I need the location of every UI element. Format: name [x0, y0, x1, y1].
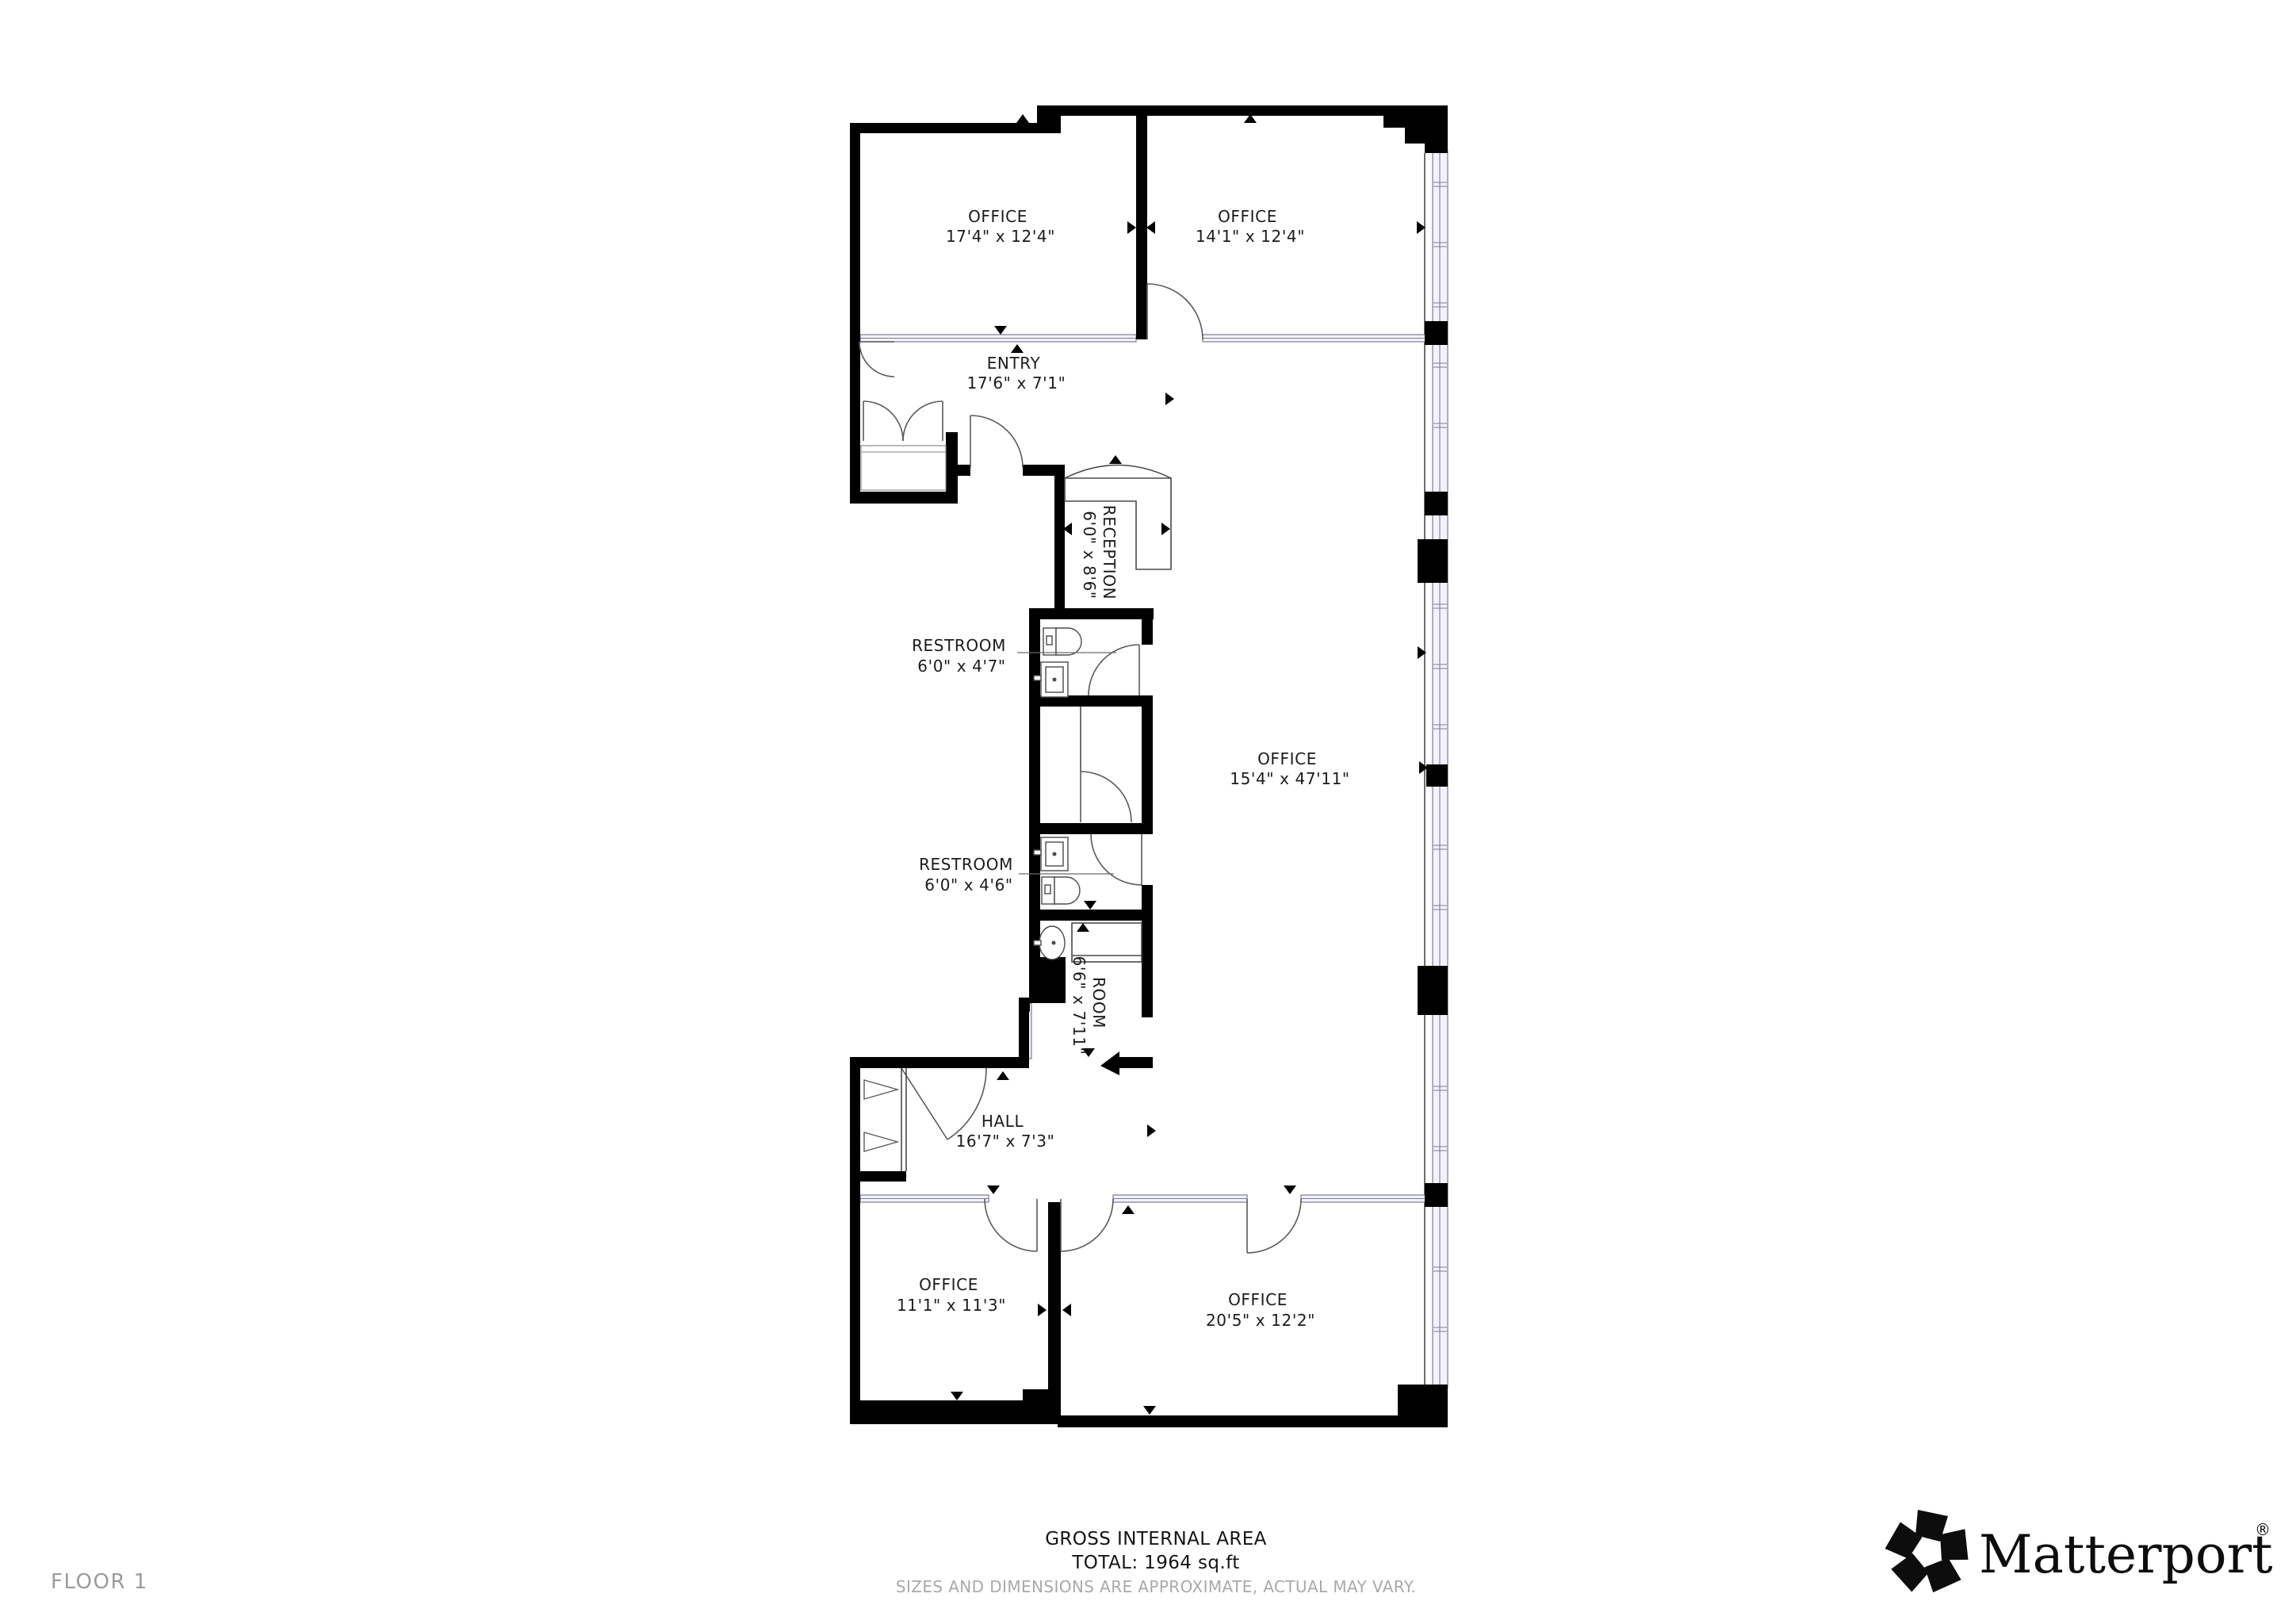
room-label-office-top-right: OFFICE 14'1" x 12'4" — [1196, 207, 1305, 246]
registered-mark: ® — [2255, 1520, 2271, 1539]
room-label-reception: RECEPTION 6'0" x 8'6" — [1080, 505, 1119, 605]
room-label-office-main: OFFICE 15'4" x 47'11" — [1230, 749, 1349, 788]
walls — [850, 105, 1448, 1427]
toilet-icon — [1042, 877, 1080, 904]
door-arcs — [859, 284, 1301, 1253]
room-label-entry: ENTRY 17'6" x 7'1" — [967, 354, 1066, 393]
floor-plan-canvas: OFFICE 17'4" x 12'4" OFFICE 14'1" x 12'4… — [0, 0, 2296, 1624]
matterport-logo: Matterport ® — [1885, 1510, 2273, 1598]
room-label-office-top-left: OFFICE 17'4" x 12'4" — [946, 207, 1055, 246]
room-label-utility-room: ROOM 6'6" x 7'11" — [1070, 956, 1108, 1055]
room-labels: OFFICE 17'4" x 12'4" OFFICE 14'1" x 12'4… — [897, 207, 1350, 1330]
entry-mat — [861, 446, 946, 490]
closet-shelves-icon — [864, 1068, 906, 1171]
matterport-wordmark: Matterport — [1979, 1524, 2273, 1585]
total-area-value: TOTAL: 1964 sq.ft — [1071, 1553, 1239, 1573]
room-label-restroom-upper: RESTROOM 6'0" x 4'7" — [912, 636, 1012, 676]
matterport-pinwheel-icon — [1885, 1510, 1974, 1598]
gross-internal-area-title: GROSS INTERNAL AREA — [1045, 1529, 1267, 1549]
floor-label: FLOOR 1 — [51, 1570, 148, 1594]
toilet-icon — [1043, 628, 1081, 655]
room-label-office-bottom-right: OFFICE 20'5" x 12'2" — [1206, 1290, 1315, 1330]
disclaimer-text: SIZES AND DIMENSIONS ARE APPROXIMATE, AC… — [896, 1577, 1416, 1596]
room-label-office-bottom-left: OFFICE 11'1" x 11'3" — [897, 1275, 1006, 1315]
room-label-restroom-lower: RESTROOM 6'0" x 4'6" — [919, 855, 1019, 894]
footer: GROSS INTERNAL AREA TOTAL: 1964 sq.ft SI… — [896, 1529, 1416, 1596]
